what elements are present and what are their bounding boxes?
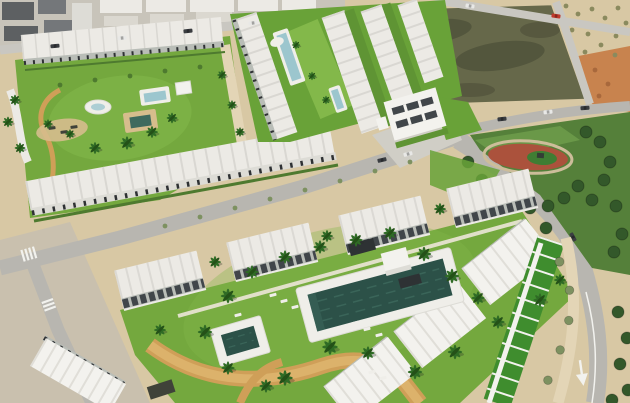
shrub bbox=[606, 82, 611, 87]
shrub bbox=[614, 34, 619, 39]
small-tree bbox=[128, 74, 133, 79]
park-tree bbox=[621, 332, 630, 344]
street-tree bbox=[555, 257, 564, 266]
town-roof bbox=[282, 0, 316, 10]
street-tree bbox=[556, 346, 565, 355]
street-tree bbox=[373, 169, 378, 174]
park-tree bbox=[558, 192, 570, 204]
park-tree bbox=[586, 194, 598, 206]
street-tree bbox=[565, 286, 574, 295]
car bbox=[50, 44, 59, 49]
street-tree bbox=[268, 197, 273, 202]
park-tree bbox=[540, 222, 552, 234]
shrub bbox=[593, 68, 598, 73]
pool-shed bbox=[175, 81, 192, 95]
street-tree bbox=[564, 316, 573, 325]
small-tree bbox=[163, 69, 168, 74]
park-tree bbox=[622, 384, 630, 396]
town-roof bbox=[146, 0, 186, 12]
street-tree bbox=[408, 160, 413, 165]
town-roof bbox=[38, 0, 66, 14]
street-tree bbox=[163, 224, 168, 229]
aerial-render bbox=[0, 0, 630, 403]
small-tree bbox=[93, 78, 98, 83]
shrub bbox=[576, 12, 581, 17]
park-tree bbox=[610, 200, 622, 212]
car bbox=[580, 106, 589, 111]
town-roof bbox=[104, 16, 138, 26]
shrub bbox=[586, 32, 591, 37]
shrub bbox=[613, 53, 618, 58]
park-tree bbox=[542, 200, 554, 212]
shrub bbox=[564, 4, 569, 9]
park-tree bbox=[616, 228, 628, 240]
park-tree bbox=[608, 246, 620, 258]
shrub bbox=[624, 21, 629, 26]
shrub bbox=[590, 7, 595, 12]
town-roof bbox=[190, 0, 234, 12]
park-tree bbox=[606, 394, 618, 403]
oval-feature-center bbox=[91, 104, 105, 111]
lot-scrub bbox=[520, 22, 560, 38]
street-tree bbox=[338, 179, 343, 184]
park-tree bbox=[598, 174, 610, 186]
scene-canvas bbox=[0, 0, 630, 403]
park-tree bbox=[572, 180, 584, 192]
town-roof bbox=[2, 2, 34, 20]
town-roof bbox=[100, 0, 142, 13]
park-tree bbox=[614, 358, 626, 370]
small-tree bbox=[58, 83, 63, 88]
shrub bbox=[597, 94, 602, 99]
street-tree bbox=[198, 215, 203, 220]
town-roof bbox=[238, 0, 278, 11]
park-tree bbox=[612, 306, 624, 318]
park-tree bbox=[604, 156, 616, 168]
shrub bbox=[599, 43, 604, 48]
play-structure bbox=[537, 153, 544, 158]
town-building bbox=[72, 3, 92, 31]
park-tree bbox=[580, 126, 592, 138]
street-tree bbox=[233, 206, 238, 211]
shrub bbox=[583, 50, 588, 55]
street-tree bbox=[303, 188, 308, 193]
shrub bbox=[616, 6, 621, 11]
park-tree bbox=[594, 136, 606, 148]
shrub bbox=[603, 16, 608, 21]
small-tree bbox=[198, 65, 203, 70]
street-tree bbox=[544, 376, 553, 385]
